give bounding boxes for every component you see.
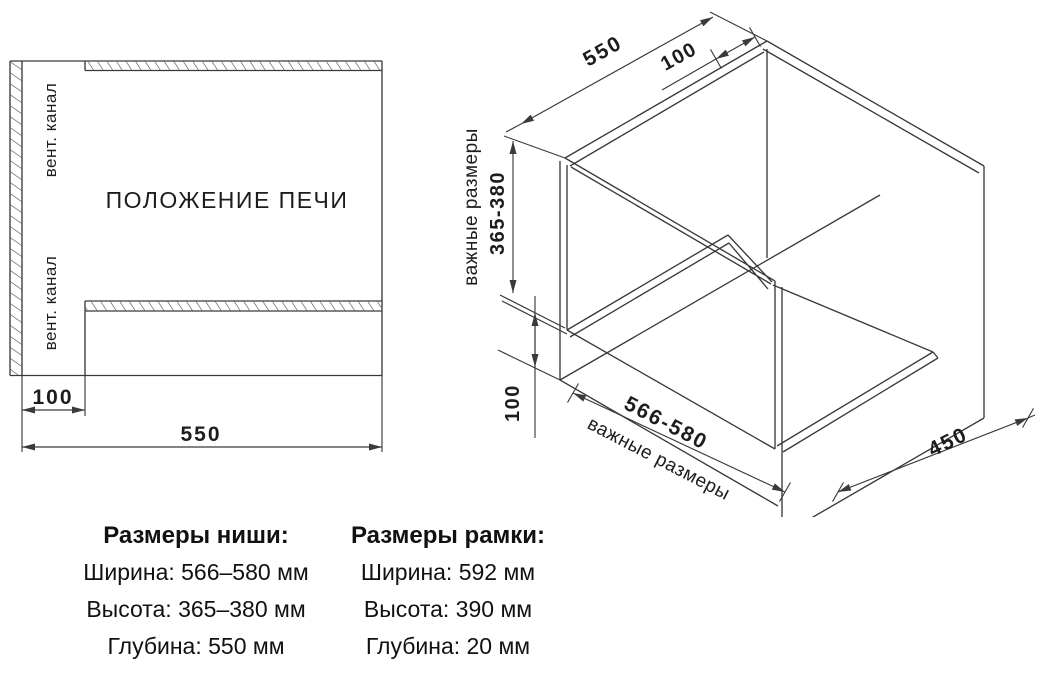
dim-label-100-bottom: 100 [502,384,524,422]
niche-depth-row: Глубина: 550 мм [60,628,332,665]
vent-channel-label-top: вент. канал [41,83,60,178]
dim-label-550-depth: 550 [180,423,221,446]
frame-width-row: Ширина: 592 мм [342,554,554,591]
installation-diagram: 100 550 ПОЛОЖЕНИЕ ПЕЧИ вент. канал вент.… [0,0,1052,700]
bottom-panel-hatch [86,302,382,311]
top-panel-hatch [86,62,382,70]
dim-line-550-iso [521,17,713,124]
frame-specs-title: Размеры рамки: [342,517,554,554]
wall-hatch [11,62,22,375]
niche-height-row: Высота: 365–380 мм [60,591,332,628]
oven-position-label: ПОЛОЖЕНИЕ ПЕЧИ [106,187,349,213]
dim-label-550-iso: 550 [579,31,626,71]
dim-line-100-top [716,37,755,59]
frame-specs-column: Размеры рамки: Ширина: 592 мм Высота: 39… [342,517,554,665]
dim-label-365-380: 365-380 [487,171,509,255]
front-view-drawing: 100 550 ПОЛОЖЕНИЕ ПЕЧИ вент. канал вент.… [10,61,382,452]
vent-channel-label-bottom: вент. канал [41,256,60,351]
drawings-canvas: 100 550 ПОЛОЖЕНИЕ ПЕЧИ вент. канал вент.… [0,0,1052,517]
important-dims-label-side: важные размеры [461,128,482,286]
dim-label-100-top: 100 [657,38,701,76]
niche-specs-column: Размеры ниши: Ширина: 566–580 мм Высота:… [60,517,332,665]
frame-depth-row: Глубина: 20 мм [342,628,554,665]
frame-height-row: Высота: 390 мм [342,591,554,628]
niche-specs-title: Размеры ниши: [60,517,332,554]
dim-label-100-offset: 100 [32,386,73,409]
niche-width-row: Ширина: 566–580 мм [60,554,332,591]
isometric-niche-drawing: 550 100 важные размеры 365-380 100 566-5… [461,12,1035,517]
front-view-outline [10,61,382,376]
